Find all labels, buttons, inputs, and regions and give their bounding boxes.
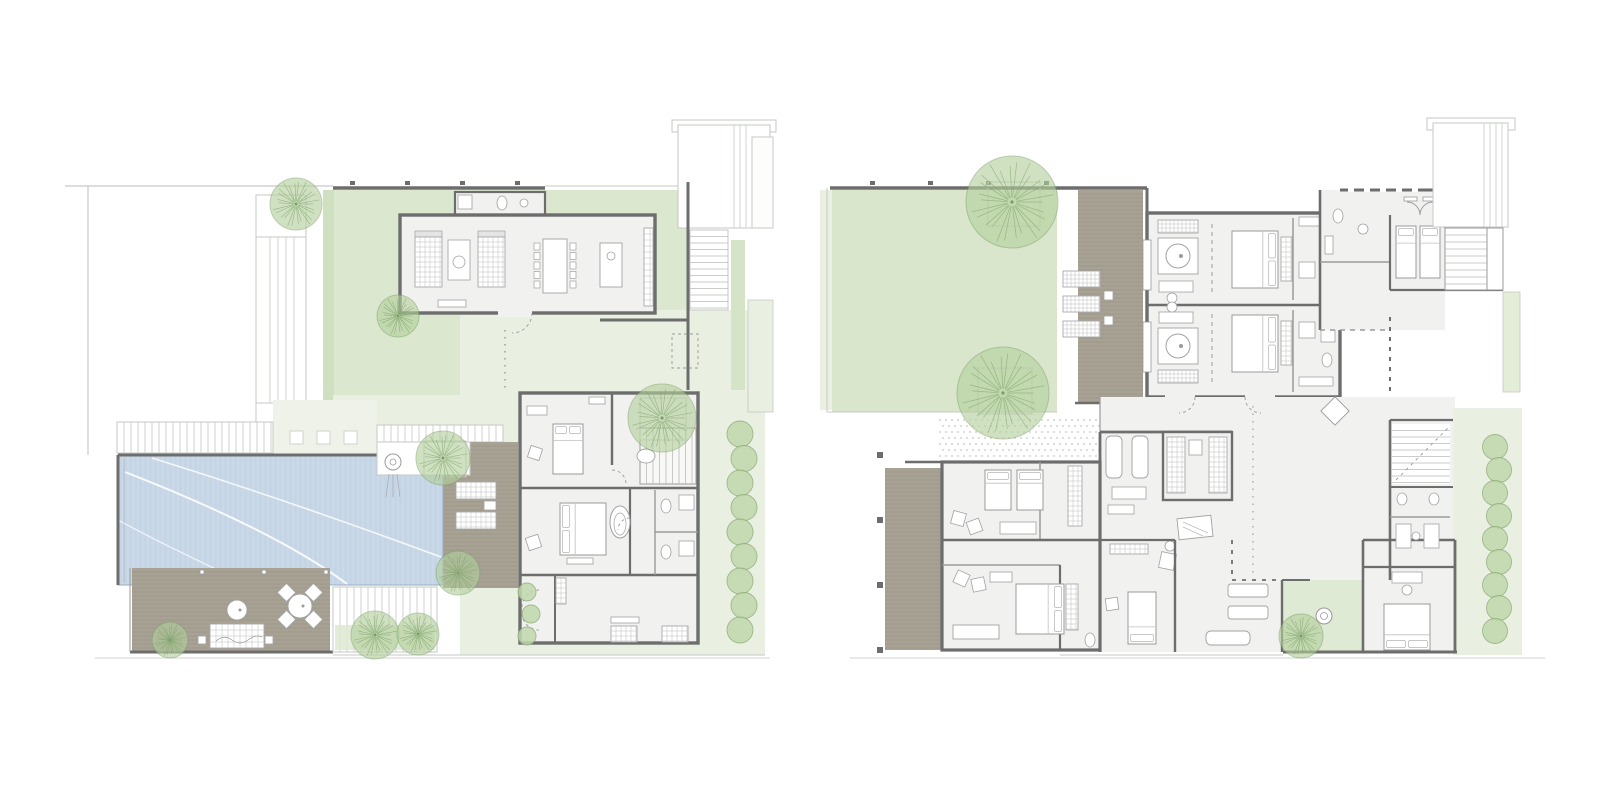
- wardrobe: [1281, 321, 1292, 365]
- stair: [1445, 228, 1487, 290]
- fountain: [1316, 608, 1332, 624]
- dot: [1002, 449, 1004, 451]
- dot: [1062, 449, 1064, 451]
- toilet: [1429, 493, 1439, 505]
- desk: [1000, 522, 1036, 534]
- hedge-shrub: [731, 593, 757, 619]
- stepping-stones-item: [344, 431, 357, 444]
- sauna-bench-base: [1209, 437, 1227, 493]
- dot: [1035, 455, 1037, 457]
- dot: [1038, 449, 1040, 451]
- dot: [966, 437, 968, 439]
- dot: [969, 443, 971, 445]
- dot: [1047, 431, 1049, 433]
- dot: [1083, 443, 1085, 445]
- dot: [1053, 443, 1055, 445]
- dot: [1065, 443, 1067, 445]
- wardrobe: [556, 578, 566, 604]
- dot: [960, 437, 962, 439]
- dot: [1071, 419, 1073, 421]
- dot: [951, 455, 953, 457]
- hedge-shrub: [1483, 619, 1508, 644]
- gym-mat: [1108, 505, 1134, 514]
- dot: [1089, 443, 1091, 445]
- stool: [1165, 541, 1175, 551]
- stair-garden: [731, 240, 745, 390]
- dot: [948, 437, 950, 439]
- dot: [1014, 449, 1016, 451]
- walk-lawn: [273, 400, 377, 455]
- dining-table-dot: [302, 605, 305, 608]
- dot: [939, 431, 941, 433]
- dot: [1011, 443, 1013, 445]
- dining-chairs-item: [570, 281, 576, 288]
- dot: [948, 449, 950, 451]
- dot: [1047, 455, 1049, 457]
- dot: [939, 419, 941, 421]
- dot: [1059, 455, 1061, 457]
- chair: [1167, 302, 1177, 312]
- shower: [1299, 322, 1315, 338]
- toilet: [661, 545, 671, 559]
- dot: [1044, 425, 1046, 427]
- dot: [972, 449, 974, 451]
- dot: [999, 443, 1001, 445]
- dot: [1077, 431, 1079, 433]
- tub-dot: [1179, 344, 1183, 348]
- toilet: [1085, 633, 1095, 647]
- armchair: [1159, 552, 1177, 571]
- dot: [1065, 431, 1067, 433]
- roof-outline: [1433, 123, 1508, 227]
- side-table: [1104, 291, 1113, 300]
- soaking-tub: [1166, 244, 1190, 268]
- sauna-stove: [1189, 440, 1202, 455]
- stepping-stones-item: [317, 431, 330, 444]
- dot: [939, 443, 941, 445]
- side-table: [484, 501, 496, 510]
- hedge-shrub: [727, 519, 753, 545]
- dot: [1068, 449, 1070, 451]
- dot: [957, 431, 959, 433]
- tree: [1279, 614, 1323, 658]
- dot: [954, 425, 956, 427]
- wardrobe: [1281, 237, 1292, 281]
- sauna-bench: [1209, 437, 1227, 493]
- dot: [1026, 449, 1028, 451]
- dot: [963, 431, 965, 433]
- pillow: [1020, 473, 1041, 480]
- hedge-shrub: [727, 617, 753, 643]
- armchair: [1105, 597, 1119, 611]
- hedge-shrub: [1483, 481, 1508, 506]
- pillow: [1055, 587, 1062, 608]
- stepping-stones-item: [290, 431, 303, 444]
- dot: [1086, 437, 1088, 439]
- wardrobe-base: [1281, 321, 1292, 365]
- stair-base: [1445, 228, 1487, 290]
- dot: [1035, 443, 1037, 445]
- deck-posts-item: [262, 570, 266, 574]
- dot: [1044, 437, 1046, 439]
- dining-chairs-item: [570, 262, 576, 269]
- rug: [662, 626, 688, 642]
- wardrobe: [1068, 466, 1082, 526]
- dot: [1056, 449, 1058, 451]
- dot: [1041, 455, 1043, 457]
- sliding-door: [1143, 240, 1151, 290]
- dot: [1035, 431, 1037, 433]
- dot: [960, 449, 962, 451]
- dot: [942, 425, 944, 427]
- dot: [1038, 425, 1040, 427]
- dot: [969, 431, 971, 433]
- pillow: [1387, 641, 1406, 648]
- dot: [1083, 431, 1085, 433]
- hedge-shrub: [1487, 458, 1512, 483]
- dot: [1029, 443, 1031, 445]
- tree: [377, 295, 419, 337]
- shower: [679, 495, 694, 510]
- toilet: [1322, 353, 1332, 367]
- dot: [990, 449, 992, 451]
- basin: [520, 199, 528, 207]
- dot: [993, 455, 995, 457]
- stair-landing: [1487, 228, 1503, 290]
- headboard: [478, 231, 505, 237]
- dot: [1005, 455, 1007, 457]
- dot: [957, 443, 959, 445]
- dot: [1074, 449, 1076, 451]
- dining-chairs-item: [534, 253, 540, 260]
- dot: [1059, 419, 1061, 421]
- vanity: [1299, 377, 1333, 386]
- tree-trunk: [441, 456, 444, 459]
- dot: [981, 455, 983, 457]
- pillow: [1131, 635, 1154, 642]
- desk: [1159, 281, 1193, 292]
- dot: [1041, 419, 1043, 421]
- dot: [942, 437, 944, 439]
- hedge-shrub: [731, 446, 757, 472]
- daybed: [1158, 220, 1198, 233]
- hedge-shrub: [727, 421, 753, 447]
- pillow: [1055, 611, 1062, 632]
- tree-trunk: [168, 638, 171, 641]
- dot: [1041, 431, 1043, 433]
- entry-steps: [117, 422, 273, 453]
- tree: [152, 622, 188, 658]
- bed: [1128, 592, 1156, 644]
- pillow: [988, 473, 1009, 480]
- basin: [1358, 224, 1368, 234]
- bed: [1016, 584, 1064, 634]
- hedge-shrub: [522, 605, 540, 623]
- tub-dot: [1179, 254, 1183, 258]
- rug: [611, 626, 637, 642]
- dining-table: [543, 239, 567, 293]
- dot: [1053, 431, 1055, 433]
- dot: [951, 431, 953, 433]
- dot: [1074, 425, 1076, 427]
- tree-trunk: [373, 633, 376, 636]
- dot: [1056, 437, 1058, 439]
- dot: [963, 455, 965, 457]
- dot: [957, 455, 959, 457]
- dot: [975, 455, 977, 457]
- kitchen-island: [600, 243, 622, 287]
- tree-trunk: [1001, 391, 1004, 394]
- treadmill: [1106, 436, 1122, 478]
- stair-garden: [748, 300, 773, 412]
- dresser: [589, 397, 605, 404]
- deck-posts-item: [877, 582, 883, 588]
- dot: [978, 437, 980, 439]
- dining-chairs-item: [570, 243, 576, 250]
- dot: [984, 449, 986, 451]
- dot: [1065, 419, 1067, 421]
- dot: [975, 443, 977, 445]
- dot: [1077, 455, 1079, 457]
- tree-trunk: [1010, 200, 1013, 203]
- dot: [1062, 437, 1064, 439]
- pillow: [1269, 261, 1276, 286]
- hedge-shrub: [727, 470, 753, 496]
- chair: [1402, 585, 1412, 595]
- pillow: [1399, 229, 1414, 236]
- pillow: [1269, 318, 1276, 343]
- exterior-stair-base: [690, 230, 728, 310]
- dining-chairs-item: [534, 262, 540, 269]
- dot: [966, 449, 968, 451]
- floor-plans-svg: [0, 0, 1600, 800]
- dot: [939, 455, 941, 457]
- tree-trunk: [660, 416, 663, 419]
- dot: [1068, 425, 1070, 427]
- dot: [1068, 437, 1070, 439]
- treadmill: [1132, 436, 1148, 478]
- daybed: [1158, 370, 1198, 383]
- dot: [981, 443, 983, 445]
- bed: [553, 424, 583, 474]
- dot: [1050, 437, 1052, 439]
- deck-posts-item: [877, 647, 883, 653]
- toilet: [1397, 493, 1407, 505]
- bed: [1384, 604, 1430, 650]
- dot: [1032, 437, 1034, 439]
- desk: [1396, 524, 1411, 548]
- bench: [438, 300, 466, 307]
- pillow: [556, 427, 567, 434]
- tree: [628, 384, 696, 452]
- dot: [1041, 443, 1043, 445]
- dot: [1092, 425, 1094, 427]
- dining-chairs: [534, 243, 540, 288]
- dot: [1059, 443, 1061, 445]
- shower: [1299, 262, 1315, 278]
- dot: [972, 437, 974, 439]
- stair-base: [1392, 424, 1450, 484]
- wardrobe: [1110, 544, 1148, 554]
- hedge-shrub: [1483, 435, 1508, 460]
- shower: [679, 541, 694, 556]
- dot: [1047, 443, 1049, 445]
- bed-mat: [478, 237, 505, 287]
- hedge-shrub: [731, 544, 757, 570]
- pillow: [1409, 641, 1428, 648]
- vanity: [1325, 236, 1333, 254]
- dot: [1023, 455, 1025, 457]
- dot: [948, 425, 950, 427]
- sofa: [953, 625, 999, 639]
- armchair: [951, 511, 967, 527]
- tree-trunk: [294, 202, 297, 205]
- dot: [1008, 449, 1010, 451]
- dot: [951, 443, 953, 445]
- coffee-table-dot: [239, 609, 242, 612]
- entry-door: [1404, 197, 1417, 201]
- dining-chairs-item: [534, 281, 540, 288]
- pillow: [563, 506, 570, 528]
- lawn-edge: [820, 190, 832, 410]
- toilet: [1333, 209, 1343, 223]
- dot: [1077, 419, 1079, 421]
- side-table: [198, 636, 206, 644]
- dot: [1095, 419, 1097, 421]
- dot: [960, 425, 962, 427]
- dining-chairs-item: [570, 272, 576, 279]
- toilet: [497, 196, 507, 210]
- toilet: [661, 499, 671, 513]
- dining-chairs: [570, 243, 576, 288]
- wardrobe: [1066, 584, 1078, 630]
- dot: [1092, 437, 1094, 439]
- kitchen-counter: [644, 228, 653, 306]
- dining-chairs-item: [570, 253, 576, 260]
- dot: [1089, 455, 1091, 457]
- dot: [957, 419, 959, 421]
- dot: [1083, 419, 1085, 421]
- wall-ticks-item: [928, 181, 933, 185]
- dot: [945, 431, 947, 433]
- dot: [1071, 431, 1073, 433]
- dot: [1056, 425, 1058, 427]
- bench: [611, 617, 639, 623]
- dot: [1053, 419, 1055, 421]
- hedge-shrub: [518, 583, 536, 601]
- dot: [996, 449, 998, 451]
- dot: [1080, 425, 1082, 427]
- dot: [1011, 455, 1013, 457]
- door-opening: [1245, 393, 1275, 401]
- stair-garden: [1503, 292, 1520, 392]
- dot: [1053, 455, 1055, 457]
- balcony-deck-base: [885, 468, 942, 650]
- dot: [1020, 437, 1022, 439]
- spa-lounger: [1063, 321, 1100, 337]
- sun-lounger: [456, 482, 496, 499]
- hedge-shrub: [1483, 527, 1508, 552]
- desk: [527, 406, 547, 415]
- kitchen-counter-base: [644, 228, 653, 306]
- dot: [975, 431, 977, 433]
- roof-outline: [752, 137, 773, 228]
- massage-table: [1228, 606, 1268, 619]
- pillow: [563, 531, 570, 553]
- hedge-shrub: [1487, 596, 1512, 621]
- bathtub: [610, 506, 630, 538]
- dot: [1020, 449, 1022, 451]
- dot: [1059, 431, 1061, 433]
- balcony-deck: [885, 468, 942, 650]
- bed: [1420, 226, 1440, 278]
- dot: [1029, 431, 1031, 433]
- hedge-row: [1483, 435, 1512, 644]
- bench: [567, 558, 593, 564]
- hedge-shrub: [1487, 504, 1512, 529]
- hedge-shrub: [727, 568, 753, 594]
- shower: [458, 195, 472, 209]
- tree: [270, 178, 322, 230]
- side-table: [265, 636, 273, 644]
- dining-table-round: [288, 594, 312, 618]
- chaise: [1206, 631, 1250, 645]
- sliding-door: [1143, 322, 1151, 372]
- dot: [1095, 431, 1097, 433]
- dot: [1038, 437, 1040, 439]
- dot: [1026, 437, 1028, 439]
- spa-lounger: [1063, 296, 1100, 312]
- dot: [954, 449, 956, 451]
- side-table: [453, 256, 465, 268]
- tree: [416, 431, 470, 485]
- chair: [1167, 293, 1177, 303]
- dot: [1023, 443, 1025, 445]
- hedge-strip: [323, 190, 334, 423]
- tree: [436, 551, 480, 595]
- dot: [1083, 455, 1085, 457]
- dot: [945, 455, 947, 457]
- rug-base: [611, 626, 637, 642]
- tree: [397, 613, 439, 655]
- armchair: [971, 577, 986, 592]
- dot: [966, 425, 968, 427]
- soaking-tub: [1166, 334, 1190, 358]
- dining-chairs-item: [534, 272, 540, 279]
- dot: [1092, 449, 1094, 451]
- bed: [560, 503, 606, 555]
- wall-ticks-item: [405, 181, 410, 185]
- dot: [1050, 449, 1052, 451]
- dot: [984, 437, 986, 439]
- hedge-row: [727, 421, 757, 643]
- dot: [1071, 455, 1073, 457]
- dot: [1005, 443, 1007, 445]
- hedge-shrub: [1487, 550, 1512, 575]
- deck-posts-item: [877, 452, 883, 458]
- tree: [966, 156, 1058, 248]
- dot: [963, 419, 965, 421]
- tree-trunk: [456, 571, 459, 574]
- stepping-stones: [290, 431, 357, 444]
- stair: [1392, 424, 1450, 484]
- pillow: [1269, 345, 1276, 370]
- dot: [987, 455, 989, 457]
- deck-posts-item: [324, 570, 328, 574]
- dot: [1080, 437, 1082, 439]
- dot: [942, 449, 944, 451]
- massage-table: [1228, 584, 1268, 597]
